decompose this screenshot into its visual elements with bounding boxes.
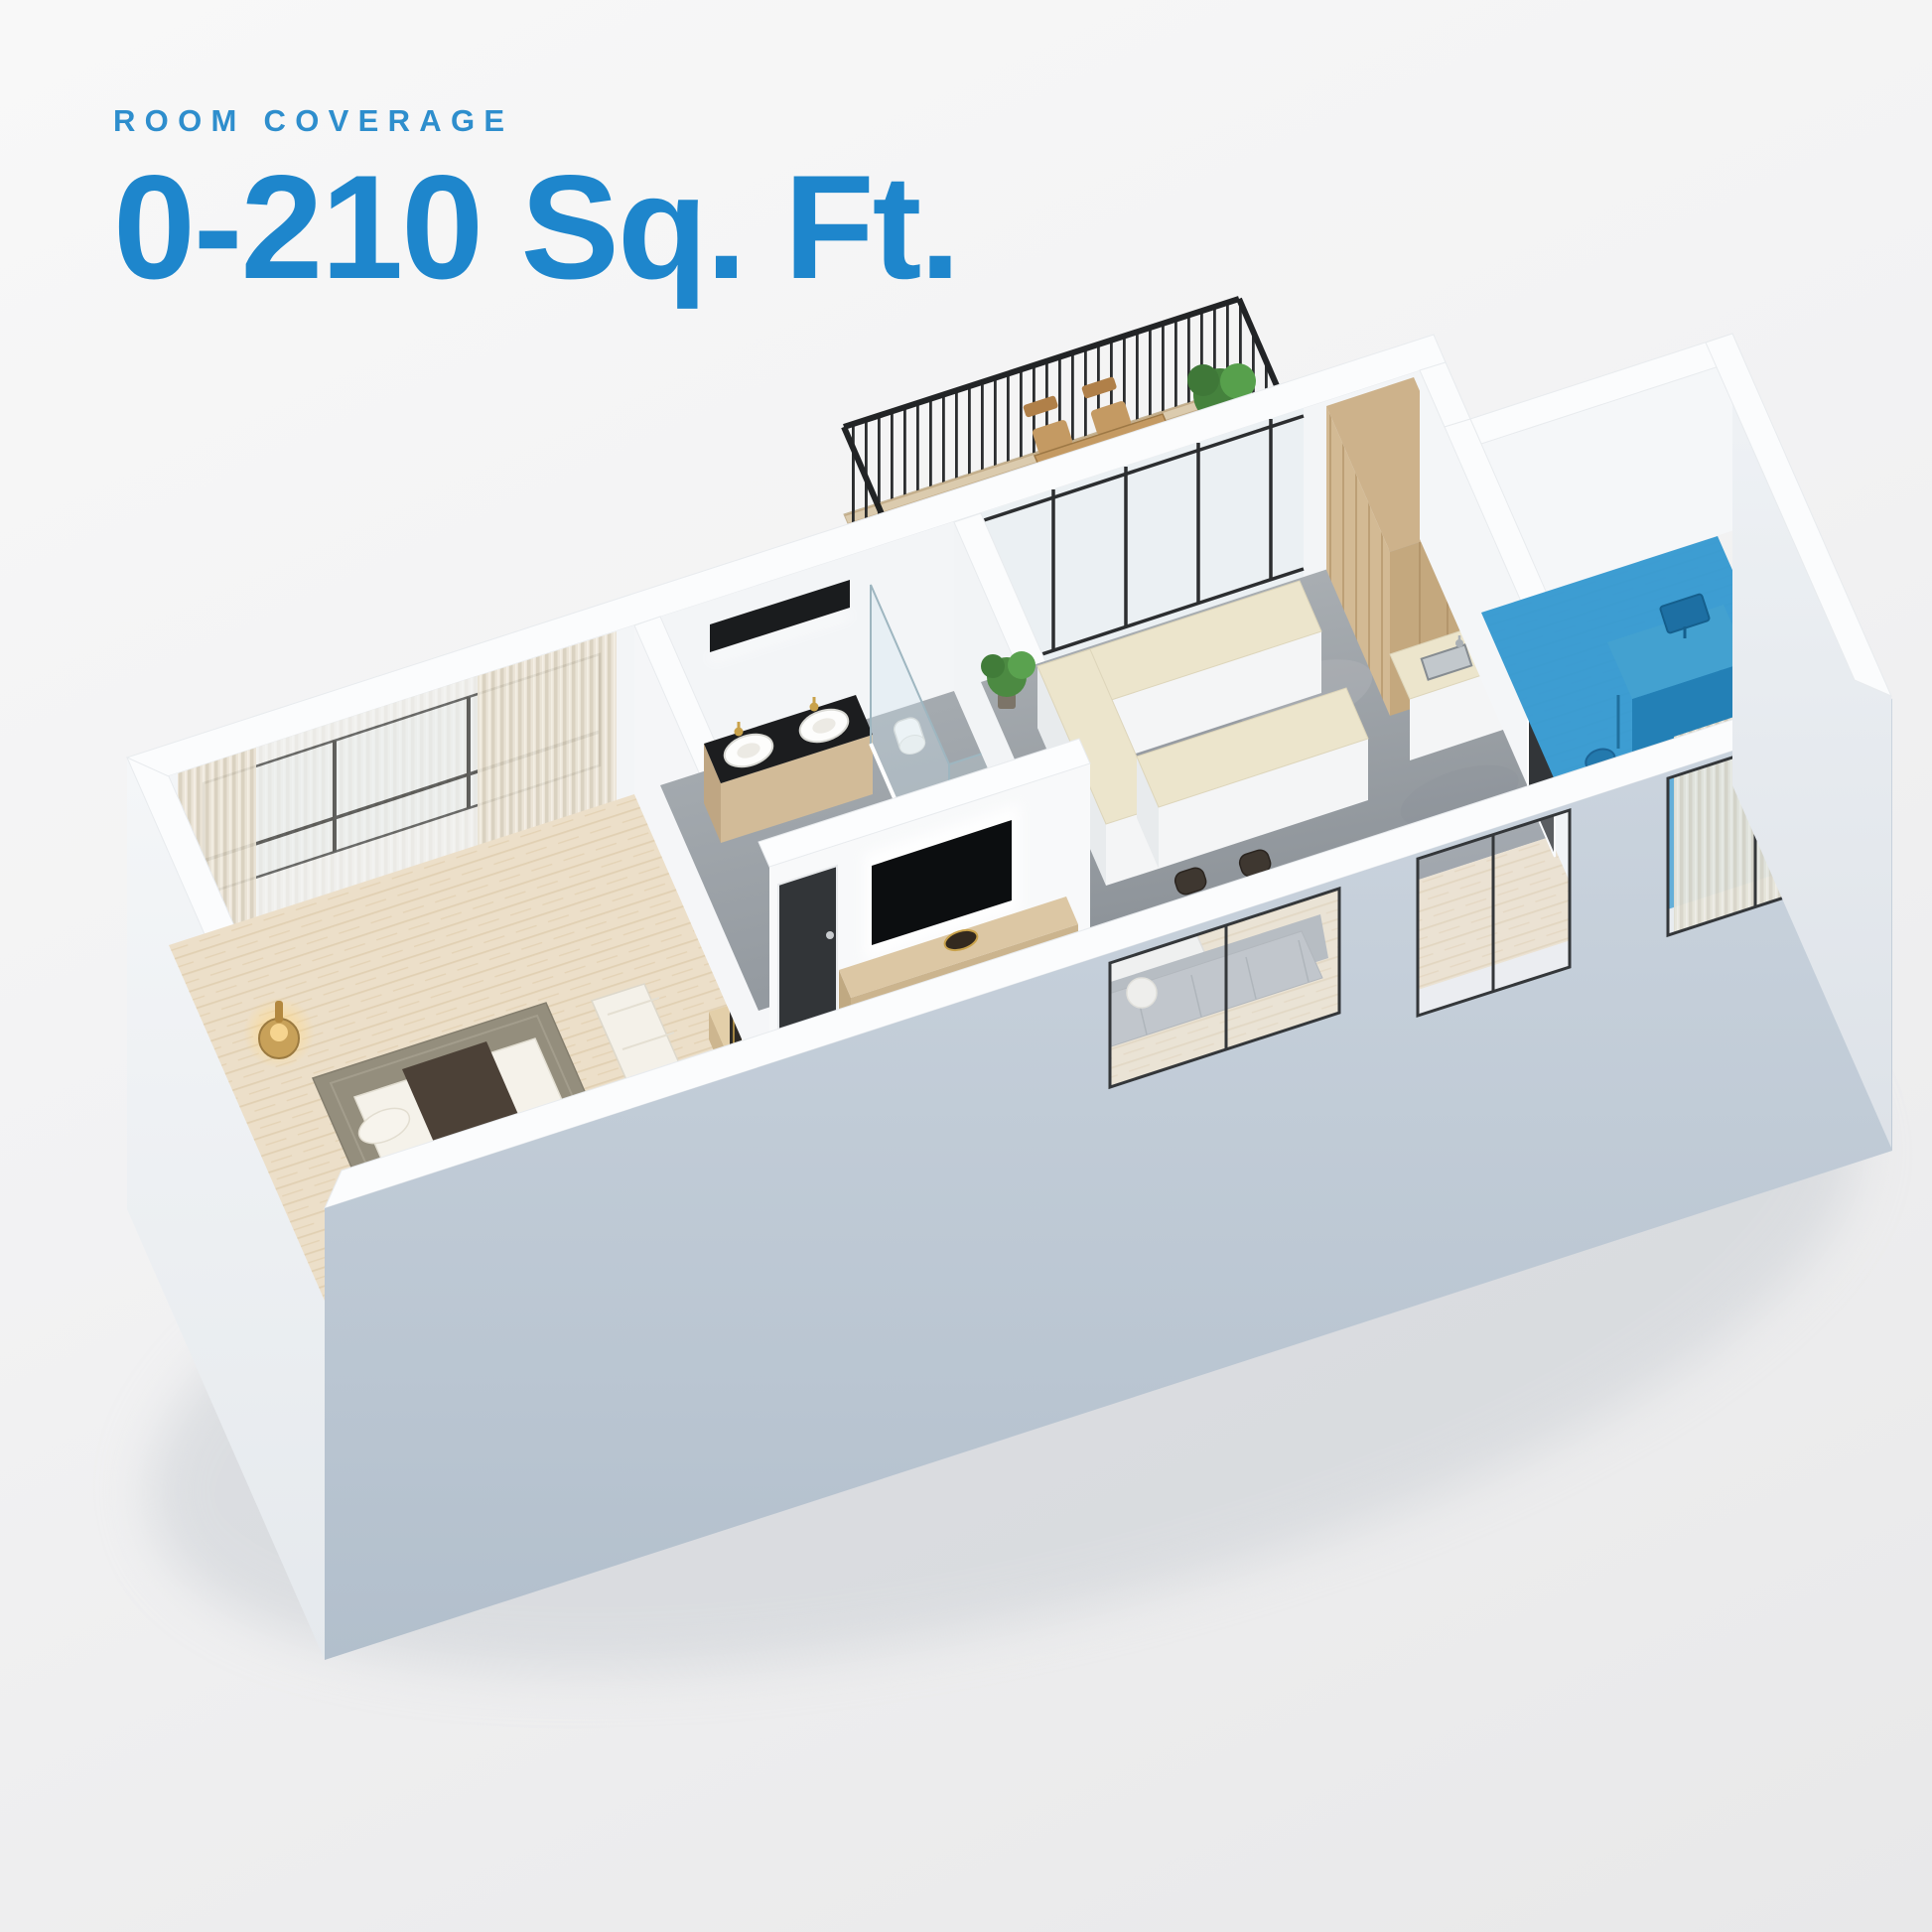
floorplan-illustration bbox=[0, 0, 1932, 1932]
page: ROOM COVERAGE 0-210 Sq. Ft. bbox=[0, 0, 1932, 1932]
bedside-lamp bbox=[243, 997, 315, 1068]
bathroom-door bbox=[778, 866, 837, 1034]
